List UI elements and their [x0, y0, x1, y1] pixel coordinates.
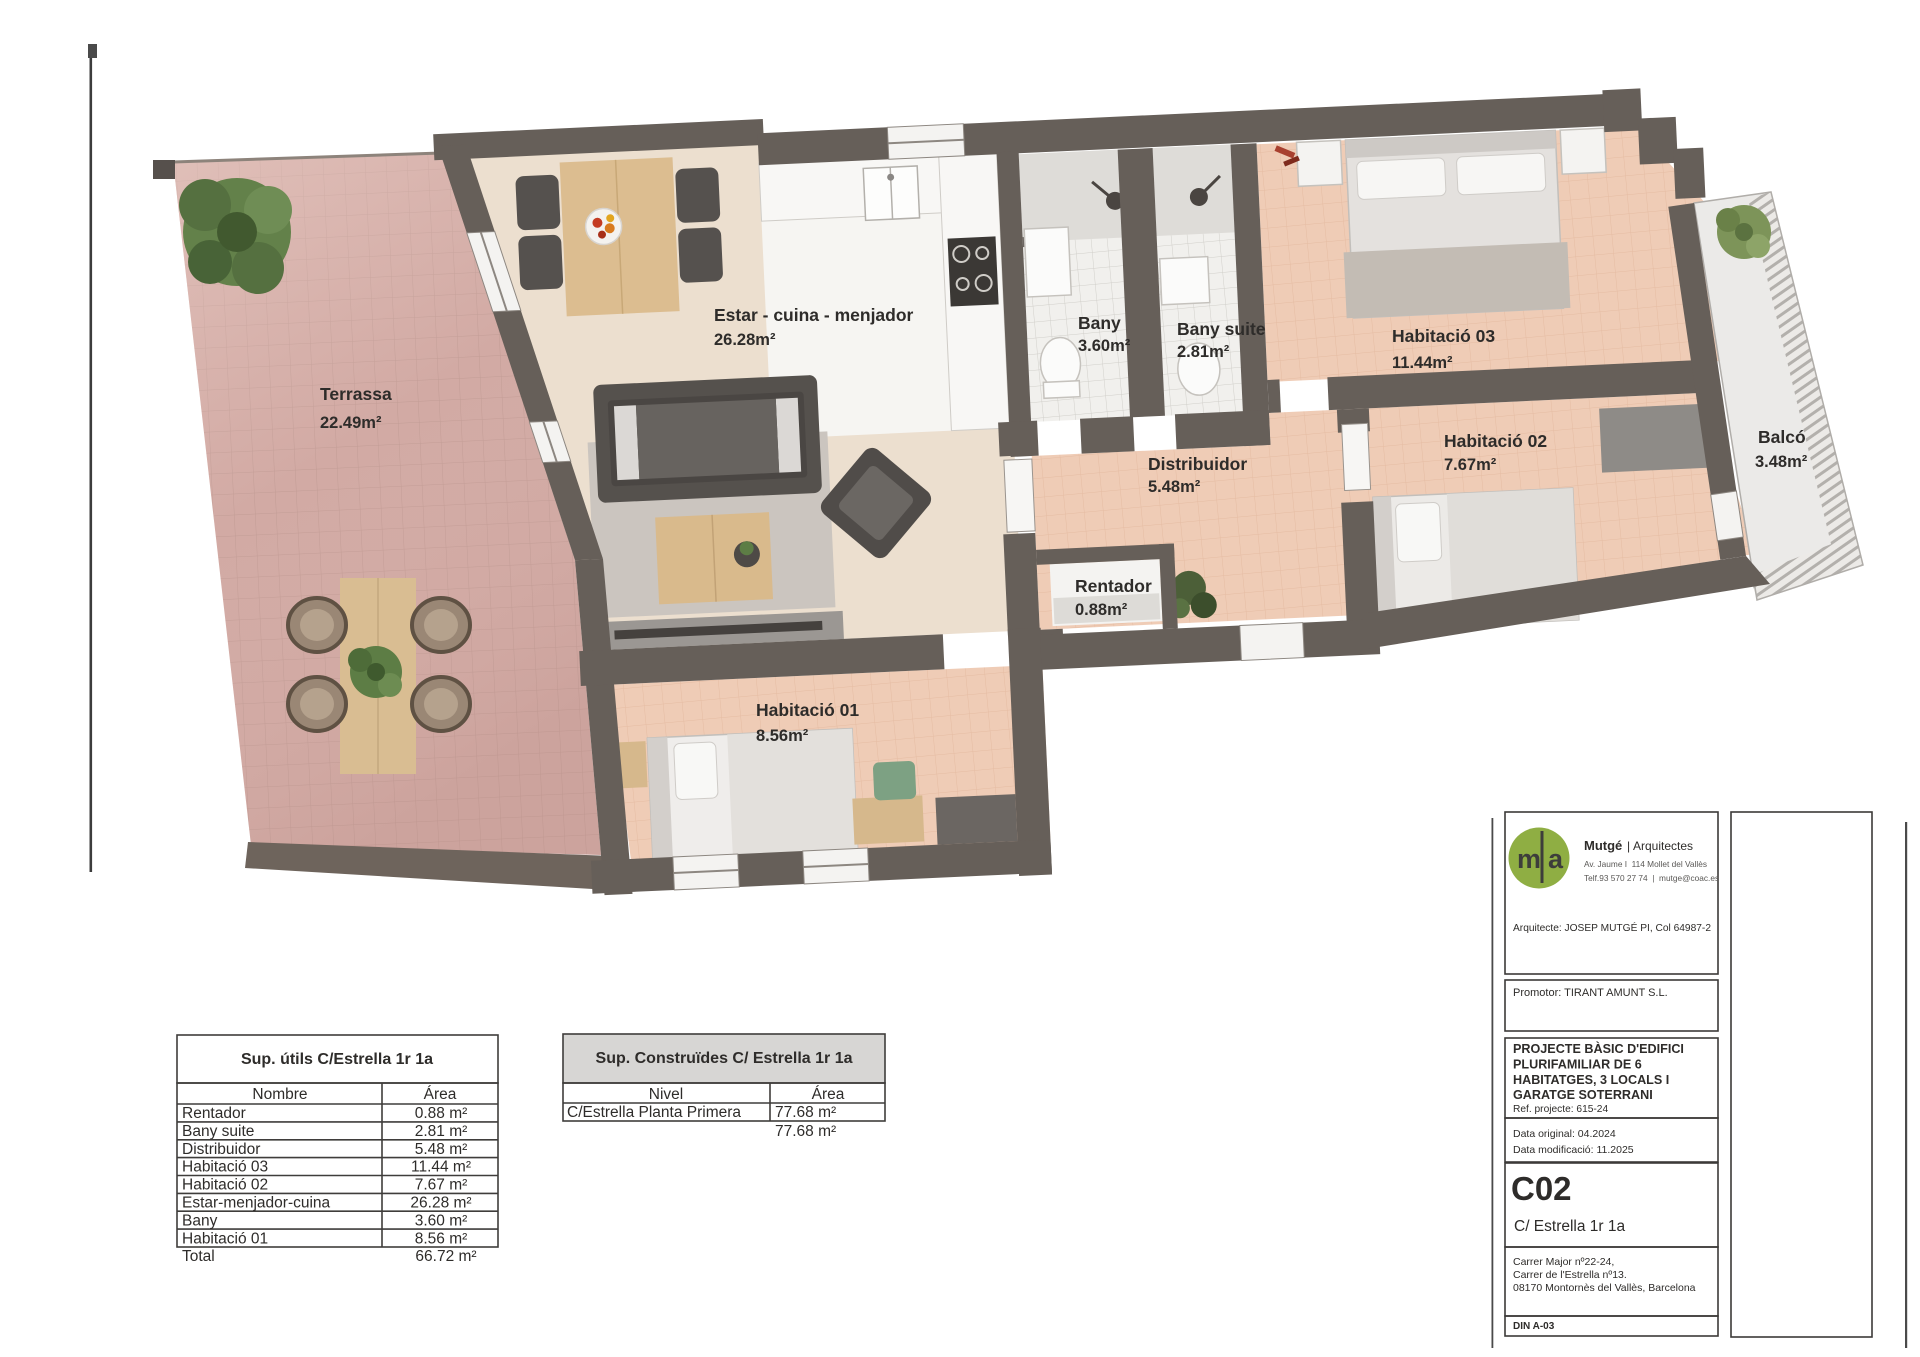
svg-text:Estar - cuina - menjador: Estar - cuina - menjador: [714, 305, 914, 325]
svg-text:Data original: 04.2024: Data original: 04.2024: [1513, 1128, 1616, 1140]
svg-text:0.88m²: 0.88m²: [1075, 601, 1128, 619]
svg-text:0.88 m²: 0.88 m²: [415, 1105, 468, 1122]
svg-text:GARATGE SOTERRANI: GARATGE SOTERRANI: [1513, 1088, 1653, 1102]
svg-text:Habitació 02: Habitació 02: [1444, 431, 1547, 451]
svg-text:C/ Estrella 1r 1a: C/ Estrella 1r 1a: [1514, 1218, 1626, 1235]
svg-text:8.56 m²: 8.56 m²: [415, 1230, 468, 1247]
svg-text:Carrer de l'Estrella nº13.: Carrer de l'Estrella nº13.: [1513, 1269, 1627, 1281]
svg-text:Rentador: Rentador: [1075, 576, 1152, 596]
svg-text:Habitació 01: Habitació 01: [756, 700, 859, 720]
svg-text:Habitació 02: Habitació 02: [182, 1177, 268, 1194]
svg-text:77.68 m²: 77.68 m²: [775, 1123, 836, 1140]
svg-text:66.72 m²: 66.72 m²: [415, 1248, 476, 1265]
svg-text:DIN A-03: DIN A-03: [1513, 1321, 1555, 1332]
svg-text:Arquitecte: JOSEP MUTGÉ PI, Co: Arquitecte: JOSEP MUTGÉ PI, Col 64987-2: [1513, 921, 1711, 934]
svg-text:3.48m²: 3.48m²: [1755, 453, 1808, 471]
svg-text:22.49m²: 22.49m²: [320, 414, 382, 432]
svg-text:77.68 m²: 77.68 m²: [775, 1104, 836, 1121]
svg-text:08170 Montornès del Vallès, Ba: 08170 Montornès del Vallès, Barcelona: [1513, 1282, 1696, 1294]
svg-text:Telf.93 570 27 74 | mutge@co: Telf.93 570 27 74 | mutge@coac.es: [1584, 873, 1719, 883]
svg-text:Habitació 01: Habitació 01: [182, 1230, 268, 1247]
svg-text:Rentador: Rentador: [182, 1105, 246, 1122]
svg-text:26.28 m²: 26.28 m²: [410, 1195, 471, 1212]
svg-text:Bany: Bany: [1078, 313, 1121, 333]
svg-text:Av. Jaume I 114 Mollet del Va: Av. Jaume I 114 Mollet del Vallès: [1584, 859, 1707, 869]
svg-text:Carrer Major nº22-24,: Carrer Major nº22-24,: [1513, 1256, 1614, 1268]
svg-text:7.67m²: 7.67m²: [1444, 456, 1497, 474]
svg-text:Terrassa: Terrassa: [320, 384, 392, 404]
svg-text:Balcó: Balcó: [1758, 427, 1806, 447]
svg-text:5.48m²: 5.48m²: [1148, 478, 1201, 496]
svg-text:11.44 m²: 11.44 m²: [411, 1159, 471, 1176]
svg-text:Data modificació: 11.2025: Data modificació: 11.2025: [1513, 1144, 1634, 1156]
svg-text:Total: Total: [182, 1248, 215, 1265]
svg-text:Arquitectes: Arquitectes: [1633, 839, 1693, 853]
svg-text:PROJECTE BÀSIC D'EDIFICI: PROJECTE BÀSIC D'EDIFICI: [1513, 1041, 1684, 1056]
svg-text:Bany suite: Bany suite: [182, 1123, 254, 1140]
svg-text:C/Estrella Planta Primera: C/Estrella Planta Primera: [567, 1104, 741, 1121]
svg-text:Nombre: Nombre: [252, 1086, 307, 1103]
svg-text:Área: Área: [812, 1086, 845, 1103]
svg-text:PLURIFAMILIAR DE 6: PLURIFAMILIAR DE 6: [1513, 1057, 1642, 1071]
svg-text:Bany suite: Bany suite: [1177, 319, 1266, 339]
svg-text:11.44m²: 11.44m²: [1392, 354, 1453, 372]
svg-text:Estar-menjador-cuina: Estar-menjador-cuina: [182, 1195, 331, 1212]
svg-text:Habitació 03: Habitació 03: [1392, 326, 1495, 346]
svg-text:Mutgé: Mutgé: [1584, 838, 1622, 853]
svg-text:26.28m²: 26.28m²: [714, 331, 776, 349]
svg-text:Sup. útils C/Estrella 1r 1a: Sup. útils C/Estrella 1r 1a: [241, 1051, 433, 1068]
svg-text:2.81m²: 2.81m²: [1177, 343, 1230, 361]
svg-text:|: |: [1627, 839, 1630, 853]
svg-text:3.60m²: 3.60m²: [1078, 337, 1131, 355]
svg-text:Habitació 03: Habitació 03: [182, 1159, 268, 1176]
svg-text:5.48 m²: 5.48 m²: [415, 1141, 468, 1158]
svg-text:7.67 m²: 7.67 m²: [415, 1177, 468, 1194]
svg-text:Distribuidor: Distribuidor: [182, 1141, 260, 1158]
svg-text:Bany: Bany: [182, 1212, 218, 1229]
svg-text:m: m: [1517, 844, 1541, 874]
svg-text:Promotor: TIRANT AMUNT S.L.: Promotor: TIRANT AMUNT S.L.: [1513, 987, 1668, 999]
svg-text:3.60 m²: 3.60 m²: [415, 1212, 468, 1229]
svg-text:Distribuidor: Distribuidor: [1148, 454, 1247, 474]
svg-text:Ref. projecte: 615-24: Ref. projecte: 615-24: [1513, 1104, 1608, 1115]
svg-text:2.81 m²: 2.81 m²: [415, 1123, 468, 1140]
svg-text:HABITATGES, 3 LOCALS I: HABITATGES, 3 LOCALS I: [1513, 1073, 1669, 1087]
svg-text:Nivel: Nivel: [649, 1086, 683, 1103]
svg-text:C02: C02: [1511, 1170, 1572, 1207]
svg-text:Área: Área: [424, 1086, 457, 1103]
svg-text:a: a: [1548, 844, 1564, 874]
svg-text:Sup. Construïdes C/ Estrella 1: Sup. Construïdes C/ Estrella 1r 1a: [596, 1050, 853, 1067]
svg-text:8.56m²: 8.56m²: [756, 727, 809, 745]
